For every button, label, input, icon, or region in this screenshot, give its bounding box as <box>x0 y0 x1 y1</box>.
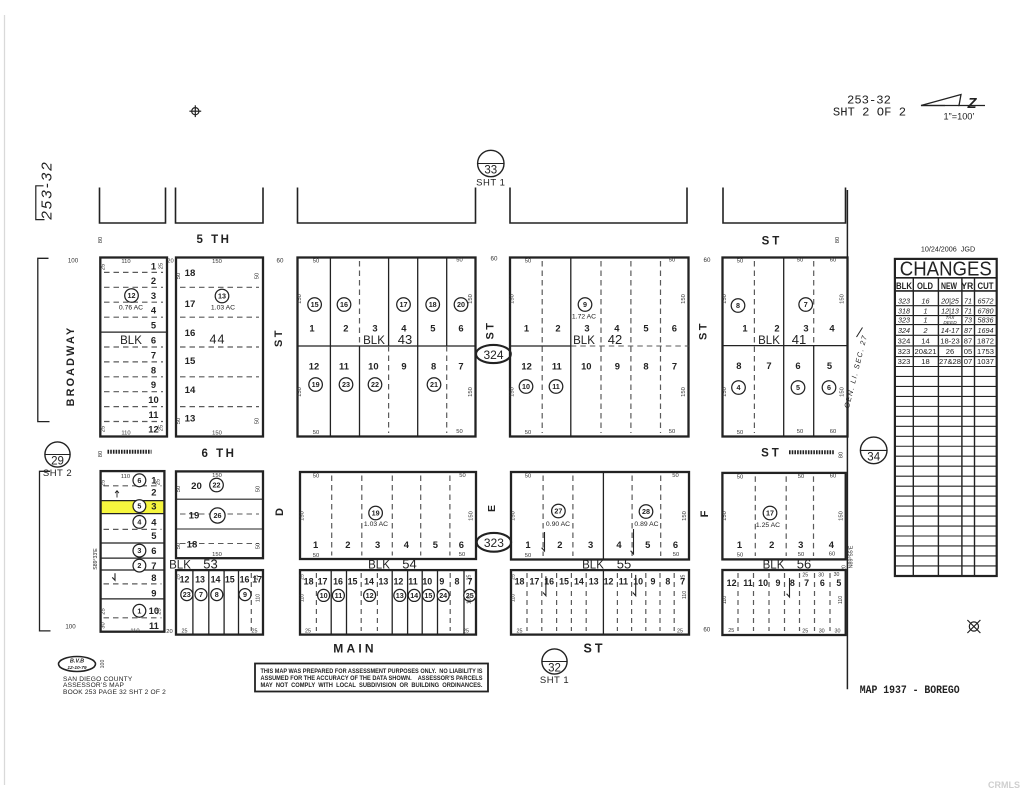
svg-text:11: 11 <box>149 620 159 631</box>
svg-text:5: 5 <box>643 323 648 334</box>
svg-text:150: 150 <box>682 511 688 521</box>
svg-text:150: 150 <box>840 294 846 304</box>
svg-text:87: 87 <box>964 326 973 335</box>
svg-text:2: 2 <box>137 561 141 570</box>
svg-text:50: 50 <box>313 430 319 436</box>
svg-text:17: 17 <box>529 577 539 587</box>
svg-text:1694: 1694 <box>978 326 994 335</box>
svg-text:110: 110 <box>300 594 306 602</box>
svg-text:42: 42 <box>608 332 622 347</box>
svg-text:25: 25 <box>101 480 107 486</box>
svg-text:6: 6 <box>820 578 825 588</box>
svg-text:50: 50 <box>669 429 675 435</box>
svg-text:17: 17 <box>400 300 408 309</box>
svg-text:13: 13 <box>185 414 196 425</box>
svg-text:BLK: BLK <box>758 335 780 347</box>
svg-text:150: 150 <box>297 387 303 397</box>
svg-text:25: 25 <box>159 263 165 269</box>
svg-text:11: 11 <box>552 361 562 372</box>
svg-text:323: 323 <box>898 296 910 305</box>
svg-text:4: 4 <box>151 516 157 527</box>
svg-text:50: 50 <box>673 552 679 558</box>
svg-text:12: 12 <box>604 577 614 587</box>
svg-text:10: 10 <box>368 361 378 372</box>
svg-text:3: 3 <box>137 546 141 555</box>
svg-text:18: 18 <box>429 300 437 309</box>
svg-text:4: 4 <box>737 383 741 392</box>
svg-text:20: 20 <box>457 300 465 309</box>
svg-text:10: 10 <box>581 361 591 372</box>
svg-text:30: 30 <box>101 622 107 628</box>
svg-text:6: 6 <box>151 545 156 556</box>
svg-text:16: 16 <box>333 577 343 587</box>
svg-text:12: 12 <box>128 291 136 300</box>
svg-text:6: 6 <box>137 476 141 485</box>
svg-text:150: 150 <box>468 387 474 397</box>
svg-text:50: 50 <box>456 258 462 264</box>
svg-text:150: 150 <box>468 294 474 304</box>
svg-text:60: 60 <box>829 552 835 558</box>
svg-text:80: 80 <box>98 451 104 457</box>
svg-text:150: 150 <box>509 294 515 304</box>
svg-text:73: 73 <box>964 316 972 325</box>
svg-text:60: 60 <box>830 474 836 480</box>
svg-text:13: 13 <box>218 292 226 301</box>
svg-text:18: 18 <box>921 357 929 366</box>
svg-text:25: 25 <box>517 629 523 635</box>
svg-text:1.03 AC: 1.03 AC <box>364 521 388 528</box>
svg-text:BLK: BLK <box>896 281 912 291</box>
svg-text:25: 25 <box>101 608 107 614</box>
svg-text:7: 7 <box>199 590 203 599</box>
svg-text:26: 26 <box>214 511 222 520</box>
svg-text:43: 43 <box>398 332 412 347</box>
svg-text:16: 16 <box>340 300 348 309</box>
svg-text:80: 80 <box>839 452 845 458</box>
svg-text:50: 50 <box>313 259 319 265</box>
svg-text:SHT 1: SHT 1 <box>540 675 569 686</box>
svg-text:MAY NOT COMPLY WITH LOCAL: MAY NOT COMPLY WITH LOCAL SUBDIVISION OR… <box>261 683 483 689</box>
svg-text:9: 9 <box>651 577 656 587</box>
svg-text:10: 10 <box>633 577 643 587</box>
svg-text:80: 80 <box>98 237 104 243</box>
svg-text:1: 1 <box>742 323 747 334</box>
svg-text:10: 10 <box>320 591 328 600</box>
svg-text:22: 22 <box>213 481 221 490</box>
svg-text:5: 5 <box>151 530 156 541</box>
svg-text:60: 60 <box>830 258 836 264</box>
svg-text:150: 150 <box>838 511 844 521</box>
svg-text:323: 323 <box>898 316 910 325</box>
svg-text:13: 13 <box>378 577 388 587</box>
svg-text:E: E <box>486 505 498 512</box>
svg-text:150: 150 <box>509 387 515 397</box>
svg-text:8: 8 <box>151 572 156 583</box>
svg-text:2: 2 <box>345 539 350 550</box>
svg-text:87: 87 <box>964 337 972 346</box>
svg-text:D: D <box>274 508 286 516</box>
svg-text:9: 9 <box>615 361 620 372</box>
svg-text:8: 8 <box>643 361 648 372</box>
svg-text:50: 50 <box>313 474 319 480</box>
svg-text:50: 50 <box>525 474 531 480</box>
svg-text:SHT 2 OF 2: SHT 2 OF 2 <box>833 106 906 120</box>
svg-text:YR: YR <box>961 281 973 291</box>
svg-text:18: 18 <box>185 268 196 279</box>
svg-text:7: 7 <box>804 578 809 588</box>
svg-text:150: 150 <box>722 511 728 521</box>
svg-text:SHT 2: SHT 2 <box>43 468 72 479</box>
svg-text:6572: 6572 <box>978 296 994 305</box>
svg-text:2: 2 <box>923 326 928 335</box>
svg-text:50: 50 <box>176 543 182 549</box>
svg-text:7: 7 <box>804 300 808 309</box>
svg-text:2: 2 <box>774 323 779 334</box>
svg-text:11: 11 <box>335 591 343 600</box>
svg-text:3: 3 <box>588 539 593 550</box>
svg-text:5: 5 <box>430 323 435 334</box>
svg-text:50: 50 <box>255 543 261 549</box>
svg-text:150: 150 <box>297 294 303 304</box>
svg-text:6: 6 <box>795 360 800 371</box>
svg-text:1: 1 <box>924 316 928 325</box>
svg-text:6780: 6780 <box>978 306 994 315</box>
svg-text:60: 60 <box>830 429 836 435</box>
svg-text:CUT: CUT <box>978 281 994 291</box>
svg-text:19: 19 <box>312 380 320 389</box>
svg-text:29: 29 <box>51 456 64 468</box>
svg-text:9: 9 <box>583 300 587 309</box>
svg-text:60: 60 <box>703 627 710 634</box>
svg-text:50: 50 <box>255 486 261 492</box>
svg-text:20|25: 20|25 <box>940 296 960 305</box>
svg-text:ST: ST <box>584 642 606 656</box>
svg-text:21: 21 <box>430 380 438 389</box>
svg-text:SHT 1: SHT 1 <box>476 178 505 189</box>
svg-text:30: 30 <box>818 573 824 579</box>
svg-text:150: 150 <box>681 294 687 304</box>
svg-text:150: 150 <box>722 294 728 304</box>
svg-text:323: 323 <box>484 536 504 550</box>
svg-text:324: 324 <box>898 326 910 335</box>
svg-text:ST: ST <box>698 321 710 340</box>
svg-text:4: 4 <box>404 539 410 550</box>
svg-text:25: 25 <box>101 426 107 432</box>
svg-text:B.V.B: B.V.B <box>70 659 84 665</box>
svg-text:5: 5 <box>827 360 832 371</box>
svg-text:17: 17 <box>766 509 774 518</box>
svg-text:25: 25 <box>802 573 808 579</box>
svg-text:50: 50 <box>525 553 531 559</box>
svg-text:50: 50 <box>798 474 804 480</box>
svg-text:323: 323 <box>898 357 911 366</box>
svg-text:1872: 1872 <box>977 337 994 346</box>
svg-text:OLD: OLD <box>917 281 933 291</box>
svg-text:07: 07 <box>964 357 972 366</box>
svg-text:50: 50 <box>798 552 804 558</box>
svg-text:150: 150 <box>212 259 222 265</box>
svg-text:1.03 AC: 1.03 AC <box>211 305 235 312</box>
svg-text:S89°33′E: S89°33′E <box>93 548 99 570</box>
svg-text:9: 9 <box>151 588 156 599</box>
svg-text:1037: 1037 <box>977 357 994 366</box>
svg-text:20&21: 20&21 <box>915 347 937 356</box>
svg-text:10: 10 <box>148 394 158 405</box>
svg-text:BLK: BLK <box>363 335 385 347</box>
svg-text:11: 11 <box>339 361 349 372</box>
svg-text:110: 110 <box>256 594 262 602</box>
svg-text:5 TH: 5 TH <box>197 234 232 246</box>
svg-text:11: 11 <box>149 409 159 420</box>
svg-text:12: 12 <box>393 577 403 587</box>
svg-text:5: 5 <box>645 539 650 550</box>
svg-text:25: 25 <box>300 574 306 580</box>
svg-text:25: 25 <box>157 608 163 614</box>
svg-text:12: 12 <box>727 578 737 588</box>
svg-text:50: 50 <box>176 418 182 424</box>
svg-text:1.72 AC: 1.72 AC <box>572 314 596 321</box>
svg-text:7: 7 <box>151 349 156 360</box>
svg-text:14: 14 <box>185 385 196 396</box>
svg-text:0.76 AC: 0.76 AC <box>119 305 143 312</box>
svg-text:12: 12 <box>521 361 531 372</box>
svg-text:4: 4 <box>829 539 835 550</box>
svg-text:323: 323 <box>898 347 911 356</box>
svg-text:324: 324 <box>483 348 503 362</box>
svg-text:8: 8 <box>736 360 741 371</box>
svg-text:05: 05 <box>964 347 972 356</box>
svg-text:50: 50 <box>737 259 743 265</box>
svg-text:25: 25 <box>802 629 808 635</box>
svg-text:7: 7 <box>151 560 156 571</box>
svg-text:14: 14 <box>211 575 221 585</box>
svg-text:110: 110 <box>838 596 844 604</box>
svg-text:5836: 5836 <box>978 316 994 325</box>
svg-text:25: 25 <box>156 479 162 485</box>
svg-text:25: 25 <box>176 574 182 580</box>
svg-text:NEW: NEW <box>941 281 957 291</box>
svg-text:4: 4 <box>137 517 141 526</box>
svg-text:16: 16 <box>185 328 196 339</box>
svg-text:110: 110 <box>121 259 130 265</box>
svg-text:2: 2 <box>557 539 562 550</box>
svg-text:14-17: 14-17 <box>941 326 960 335</box>
svg-text:12: 12 <box>148 424 158 435</box>
svg-text:6: 6 <box>672 323 677 334</box>
svg-text:16: 16 <box>922 296 930 305</box>
svg-text:1”=100’: 1”=100’ <box>944 112 975 122</box>
svg-text:50: 50 <box>672 473 678 479</box>
svg-text:1: 1 <box>524 323 529 334</box>
svg-text:11: 11 <box>408 577 417 587</box>
svg-text:0.89 AC: 0.89 AC <box>634 521 658 528</box>
svg-text:ST: ST <box>273 328 285 347</box>
svg-text:15: 15 <box>559 577 569 587</box>
svg-text:5: 5 <box>151 320 156 331</box>
svg-text:324: 324 <box>898 337 911 346</box>
svg-text:1: 1 <box>137 606 141 615</box>
svg-text:71: 71 <box>964 296 972 305</box>
svg-text:4: 4 <box>616 539 622 550</box>
svg-text:50: 50 <box>525 430 531 436</box>
svg-text:30: 30 <box>834 572 840 578</box>
svg-text:MAP 1937 - BOREGO: MAP 1937 - BOREGO <box>860 685 960 697</box>
svg-text:1: 1 <box>737 539 742 550</box>
svg-text:9: 9 <box>243 590 247 599</box>
svg-text:9: 9 <box>439 577 444 587</box>
svg-text:14: 14 <box>921 337 929 346</box>
svg-text:0.90 AC: 0.90 AC <box>546 521 570 528</box>
svg-text:6 TH: 6 TH <box>202 448 237 460</box>
svg-text:5: 5 <box>836 578 841 588</box>
svg-text:4: 4 <box>829 323 835 334</box>
svg-text:6: 6 <box>151 335 156 346</box>
svg-text:25: 25 <box>101 264 107 270</box>
svg-text:ASSUMED FOR THE ACCURACY OF TH: ASSUMED FOR THE ACCURACY OF THE DATA SHO… <box>261 676 483 682</box>
svg-text:2: 2 <box>151 487 156 498</box>
svg-text:8: 8 <box>790 578 795 588</box>
svg-text:12: 12 <box>309 361 319 372</box>
svg-text:12: 12 <box>366 591 374 600</box>
svg-text:5: 5 <box>796 383 800 392</box>
svg-text:110: 110 <box>130 628 139 634</box>
svg-text:110: 110 <box>722 596 728 604</box>
svg-text:100: 100 <box>100 660 106 669</box>
svg-text:20: 20 <box>166 629 172 635</box>
svg-text:13: 13 <box>396 591 404 600</box>
svg-text:44: 44 <box>210 333 226 347</box>
svg-text:26: 26 <box>946 347 954 356</box>
svg-text:6: 6 <box>459 539 464 550</box>
svg-text:3: 3 <box>375 539 380 550</box>
svg-text:80: 80 <box>835 237 841 243</box>
svg-text:8: 8 <box>151 364 156 375</box>
svg-text:BLK: BLK <box>120 335 142 347</box>
svg-text:50: 50 <box>176 273 182 279</box>
svg-text:25: 25 <box>677 629 683 635</box>
svg-text:71: 71 <box>964 306 972 315</box>
svg-text:6: 6 <box>458 323 463 334</box>
svg-text:50: 50 <box>313 553 319 559</box>
svg-text:50: 50 <box>797 429 803 435</box>
svg-text:5: 5 <box>137 502 141 511</box>
svg-text:25: 25 <box>463 629 469 635</box>
svg-text:1.25 AC: 1.25 AC <box>756 522 780 529</box>
svg-text:60: 60 <box>704 257 711 264</box>
svg-text:2: 2 <box>555 323 560 334</box>
svg-text:2: 2 <box>343 323 348 334</box>
svg-text:50: 50 <box>737 430 743 436</box>
svg-text:25: 25 <box>728 628 734 634</box>
svg-text:15: 15 <box>424 591 432 600</box>
svg-text:30: 30 <box>819 629 825 635</box>
svg-text:50: 50 <box>737 474 743 480</box>
svg-text:50: 50 <box>459 473 465 479</box>
svg-text:25: 25 <box>254 575 260 581</box>
svg-text:18-23: 18-23 <box>940 337 959 346</box>
svg-text:60: 60 <box>491 256 498 263</box>
svg-text:19: 19 <box>372 509 380 518</box>
svg-text:ST: ST <box>485 320 497 339</box>
svg-text:10: 10 <box>422 577 432 587</box>
svg-text:7: 7 <box>458 361 463 372</box>
svg-text:11: 11 <box>743 578 752 588</box>
svg-text:10: 10 <box>522 382 530 391</box>
svg-text:25: 25 <box>182 629 188 635</box>
svg-text:150: 150 <box>300 511 306 521</box>
svg-text:50: 50 <box>525 259 531 265</box>
svg-text:27&28: 27&28 <box>939 357 961 366</box>
svg-text:27: 27 <box>554 507 562 516</box>
svg-text:3: 3 <box>584 323 589 334</box>
svg-text:6: 6 <box>673 539 678 550</box>
svg-text:3: 3 <box>372 323 377 334</box>
svg-text:F: F <box>699 510 711 517</box>
svg-text:25: 25 <box>305 629 311 635</box>
svg-text:16: 16 <box>240 575 250 585</box>
svg-text:110: 110 <box>467 596 473 604</box>
svg-text:20: 20 <box>191 481 202 492</box>
svg-text:Z: Z <box>967 96 978 112</box>
svg-text:CRMLS: CRMLS <box>988 780 1020 790</box>
svg-text:60: 60 <box>277 258 284 265</box>
svg-text:25: 25 <box>252 629 258 635</box>
svg-text:15: 15 <box>311 300 319 309</box>
svg-text:50: 50 <box>797 258 803 264</box>
svg-text:50: 50 <box>255 273 261 279</box>
svg-text:50: 50 <box>456 429 462 435</box>
svg-text:33: 33 <box>484 165 497 177</box>
svg-text:BROADWAY: BROADWAY <box>65 326 77 407</box>
svg-text:3: 3 <box>151 290 156 301</box>
svg-text:25: 25 <box>159 425 165 431</box>
svg-text:22: 22 <box>371 380 379 389</box>
svg-text:7: 7 <box>672 361 677 372</box>
svg-text:110: 110 <box>510 594 516 602</box>
svg-text:N89°55′E: N89°55′E <box>848 545 854 568</box>
svg-text:32: 32 <box>548 663 561 675</box>
svg-text:3: 3 <box>151 501 156 512</box>
svg-text:3: 3 <box>798 539 803 550</box>
svg-text:150: 150 <box>468 511 474 521</box>
svg-text:34: 34 <box>867 452 880 464</box>
svg-text:17: 17 <box>185 299 196 310</box>
svg-text:1: 1 <box>151 260 156 271</box>
svg-text:4: 4 <box>151 305 157 316</box>
svg-text:2: 2 <box>151 275 156 286</box>
svg-text:14: 14 <box>364 577 374 587</box>
svg-text:110: 110 <box>121 474 130 480</box>
svg-text:50: 50 <box>737 553 743 559</box>
svg-text:28: 28 <box>642 507 650 516</box>
svg-text:1: 1 <box>309 323 314 334</box>
svg-text:25: 25 <box>680 575 686 581</box>
svg-text:100: 100 <box>65 624 76 631</box>
svg-text:30: 30 <box>835 629 841 635</box>
svg-text:150: 150 <box>722 387 728 397</box>
svg-text:41: 41 <box>792 332 806 347</box>
svg-text:8: 8 <box>736 301 740 310</box>
svg-text:10: 10 <box>758 578 768 588</box>
svg-text:8: 8 <box>431 361 436 372</box>
svg-text:ST: ST <box>762 236 783 248</box>
svg-text:14: 14 <box>410 591 418 600</box>
svg-text:110: 110 <box>682 591 688 599</box>
svg-text:19: 19 <box>189 511 200 522</box>
svg-text:100: 100 <box>68 258 79 265</box>
svg-text:12-10-79: 12-10-79 <box>67 665 87 671</box>
svg-text:15: 15 <box>348 577 358 587</box>
